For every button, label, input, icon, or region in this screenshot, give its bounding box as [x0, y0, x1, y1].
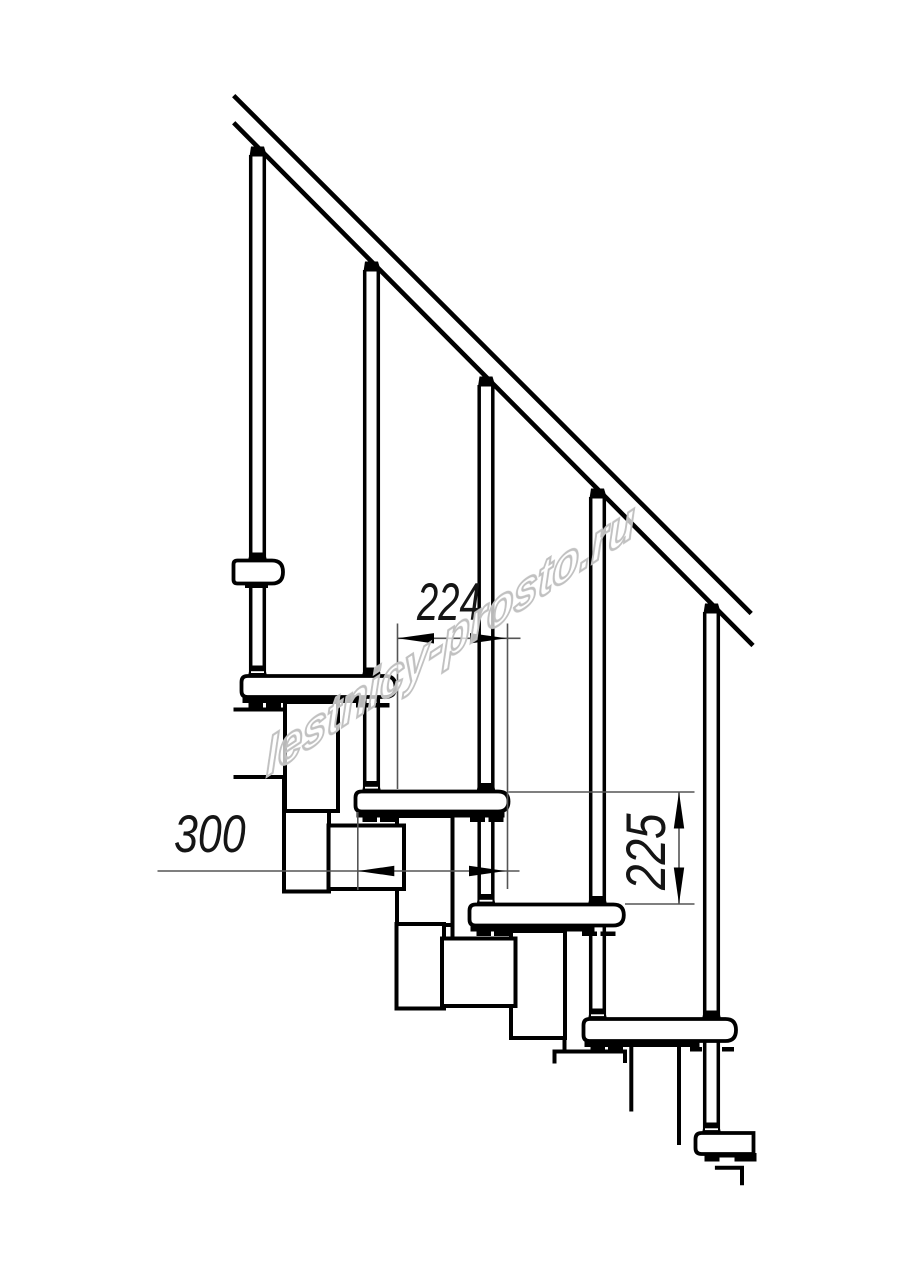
svg-text:225: 225 — [615, 813, 677, 891]
svg-text:300: 300 — [174, 805, 246, 864]
